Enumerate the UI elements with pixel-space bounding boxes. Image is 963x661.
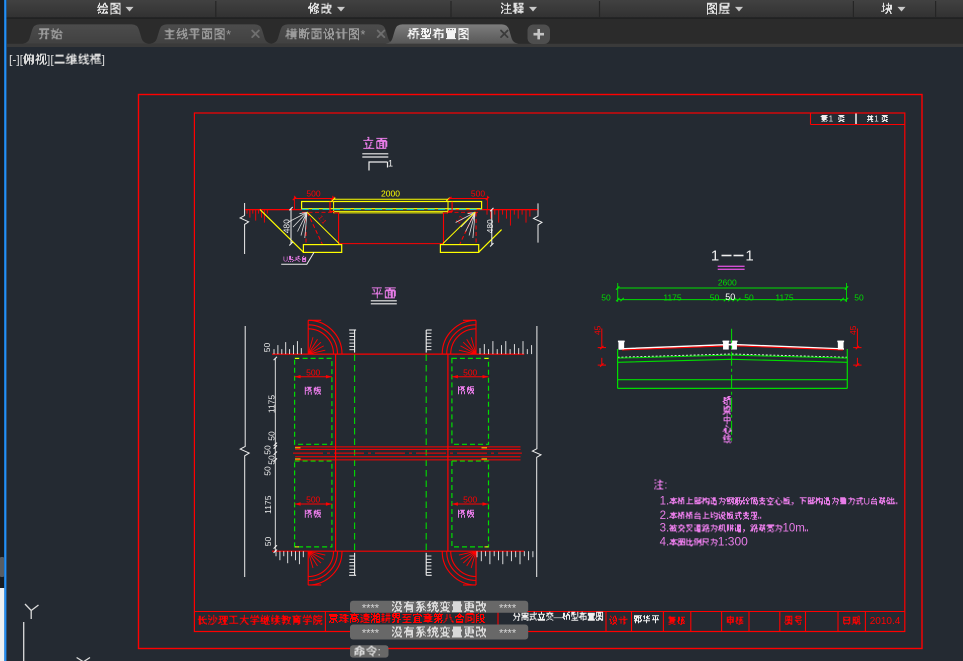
svg-text:50: 50 (262, 466, 272, 476)
svg-text:1: 1 (829, 115, 834, 124)
svg-text:500: 500 (463, 494, 477, 504)
svg-text:2010.4: 2010.4 (870, 616, 901, 627)
svg-text:1: 1 (745, 247, 753, 264)
svg-text:2600: 2600 (718, 278, 737, 288)
svg-text:1: 1 (388, 159, 393, 169)
svg-text::: : (378, 645, 381, 659)
svg-text:50: 50 (601, 292, 611, 302)
svg-text:50: 50 (854, 292, 864, 302)
svg-text:][: ][ (47, 53, 54, 67)
svg-text:1175: 1175 (663, 292, 682, 302)
svg-text:10m: 10m (783, 523, 805, 535)
svg-text:50: 50 (725, 292, 735, 302)
svg-text:2.: 2. (660, 510, 670, 522)
svg-text:4.: 4. (660, 537, 670, 549)
svg-text:****: **** (499, 602, 517, 614)
svg-text:500: 500 (306, 367, 320, 377)
svg-text:3.: 3. (660, 523, 670, 535)
svg-text:50: 50 (263, 537, 273, 547)
svg-text:****: **** (362, 602, 380, 614)
svg-text:500: 500 (306, 494, 320, 504)
svg-text:500: 500 (471, 188, 485, 198)
svg-text:480: 480 (282, 219, 292, 233)
svg-text:50: 50 (262, 445, 272, 455)
svg-text:2000: 2000 (381, 188, 400, 198)
svg-text:1175: 1175 (263, 495, 273, 514)
svg-text:U: U (864, 497, 871, 507)
svg-text:]: ] (102, 53, 105, 67)
svg-text:1: 1 (874, 115, 879, 124)
svg-text:480: 480 (485, 219, 495, 233)
svg-text:*: * (226, 28, 231, 42)
svg-text:50: 50 (710, 292, 720, 302)
svg-text:50: 50 (266, 455, 276, 465)
svg-text:U: U (283, 257, 288, 264)
svg-text:50: 50 (266, 431, 276, 441)
svg-text:*: * (361, 28, 366, 42)
svg-text:1: 1 (711, 247, 719, 264)
svg-text:1.: 1. (660, 496, 670, 508)
svg-text:[-][: [-][ (9, 53, 24, 67)
svg-text:1:300: 1:300 (718, 535, 748, 549)
svg-text:45: 45 (593, 325, 603, 335)
svg-text::: : (664, 480, 667, 492)
svg-text:1175: 1175 (775, 292, 794, 302)
svg-text:—: — (554, 612, 563, 622)
svg-text:****: **** (499, 628, 517, 640)
svg-text:50: 50 (744, 292, 754, 302)
svg-text:50: 50 (262, 343, 272, 353)
svg-text:500: 500 (306, 188, 320, 198)
svg-text:500: 500 (463, 367, 477, 377)
svg-text:1175: 1175 (266, 395, 276, 414)
svg-text:****: **** (362, 628, 380, 640)
svg-text:45: 45 (848, 325, 858, 335)
